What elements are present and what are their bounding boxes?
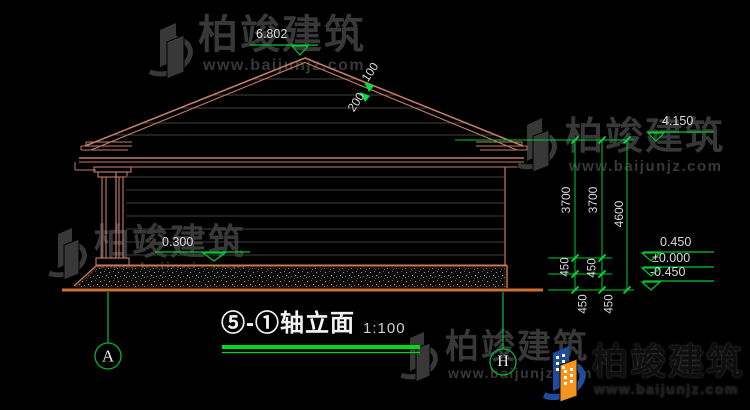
- axis-label-left: A: [102, 348, 114, 365]
- title-underline: [222, 347, 420, 353]
- ridge-level-label: 6.802: [256, 28, 287, 41]
- cad-elevation-canvas[interactable]: 柏竣建筑 www.baijunjz.com 柏竣建筑 www.baijunjz.…: [0, 0, 750, 410]
- plinth-level-label: 0.450: [660, 236, 691, 249]
- drawing-title: ⑤-①轴立面: [221, 312, 355, 336]
- drawing-scale: 1:100: [363, 321, 406, 336]
- plinth-and-ground: [62, 265, 543, 290]
- eave-level-label: 4.150: [662, 115, 693, 128]
- dim-450-mid-upper: 450: [587, 258, 599, 277]
- dim-450-mid-lower: 450: [604, 294, 616, 313]
- dim-4600-total: 4600: [613, 201, 625, 228]
- porch-column: [94, 167, 131, 265]
- axis-label-right: H: [497, 354, 509, 370]
- dim-450-left-lower: 450: [578, 294, 590, 313]
- porch-level-label: 0.300: [162, 236, 193, 249]
- dim-3700-mid: 3700: [587, 187, 599, 214]
- gable-siding-lines: [112, 79, 498, 135]
- ground-level-label: -0.450: [650, 266, 685, 279]
- zero-level-label: ±0.000: [652, 252, 690, 265]
- dim-3700-left: 3700: [560, 187, 572, 214]
- dim-450-left-upper: 450: [560, 257, 572, 276]
- roof-outline: [85, 58, 523, 150]
- cornice-bands: [75, 142, 527, 170]
- plinth-hatch: [76, 268, 505, 287]
